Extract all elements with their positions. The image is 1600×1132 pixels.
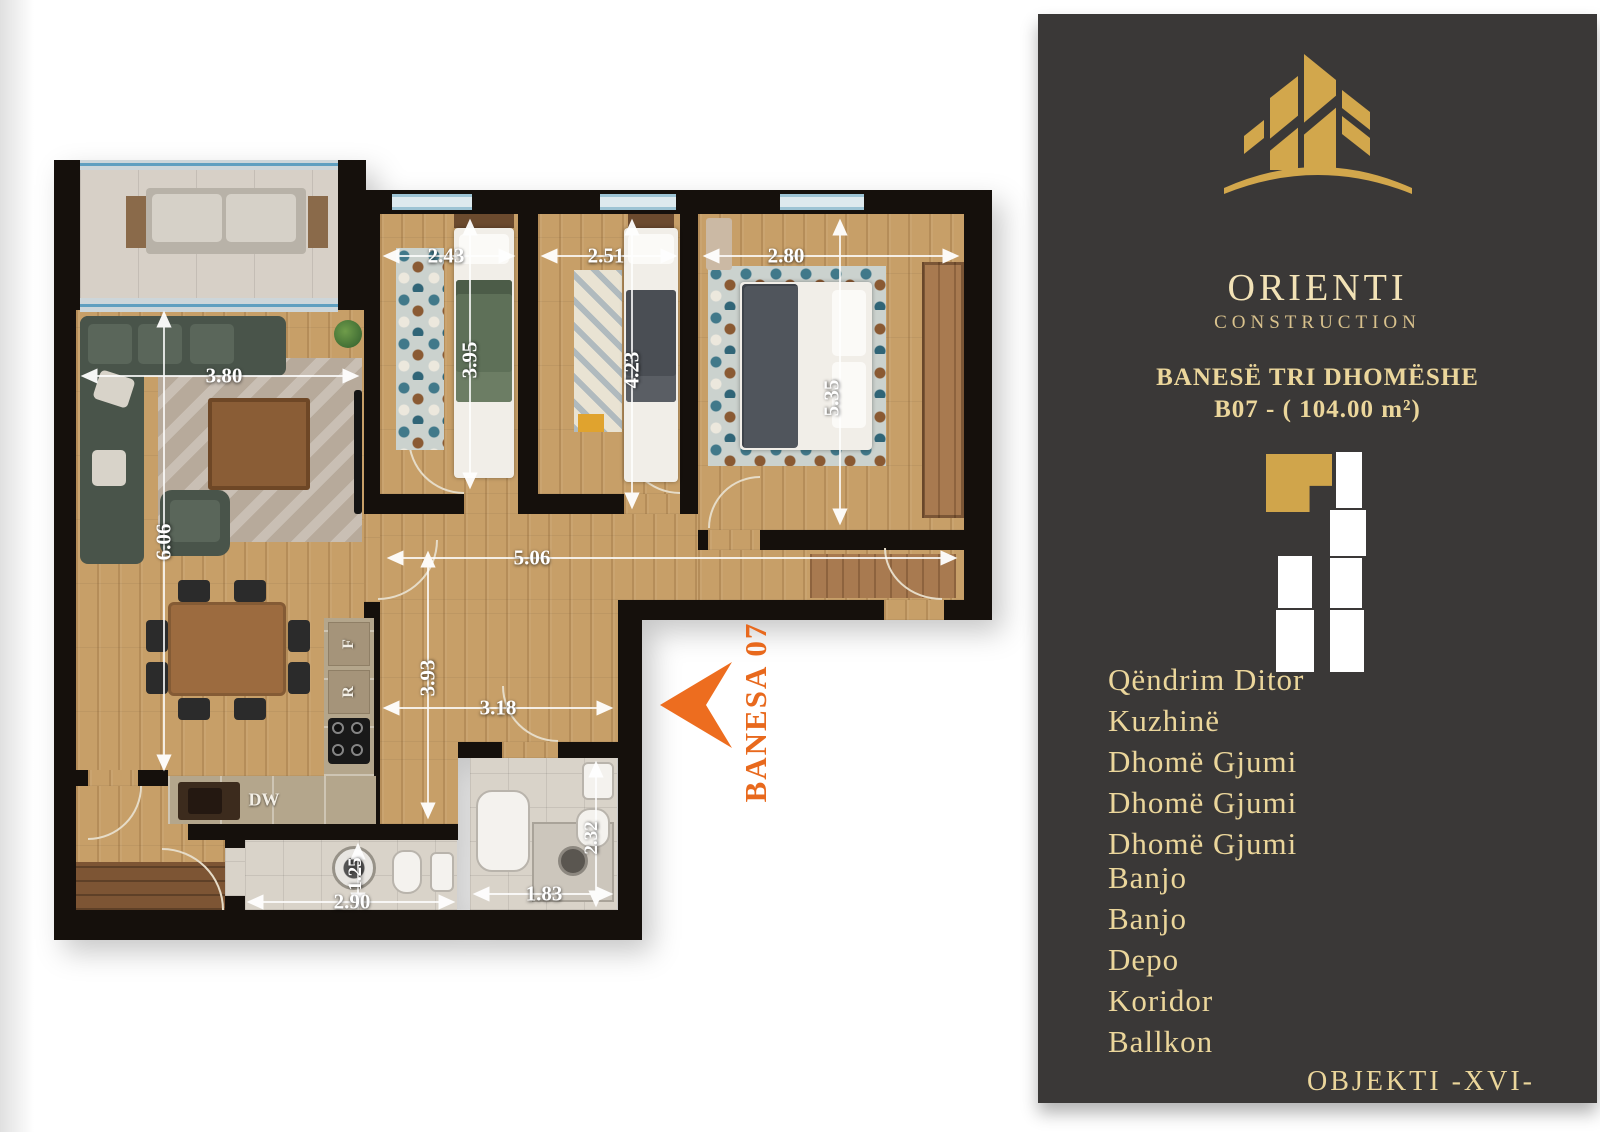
bedroom3-duvet-dark — [742, 284, 798, 448]
wall — [338, 160, 366, 310]
toilet — [392, 850, 422, 894]
bedroom2-pillow — [628, 234, 674, 264]
flyer-page: F R DW — [0, 0, 1600, 1132]
dining-chair — [146, 620, 168, 652]
room-list-item: Banjo — [1108, 903, 1304, 935]
bathtub — [476, 790, 530, 872]
bedroom3-pillow — [832, 290, 866, 356]
stove-burner — [332, 722, 344, 734]
wall — [518, 212, 538, 514]
door-gap-bedroom2 — [624, 494, 680, 514]
dining-chair — [146, 662, 168, 694]
coffee-table — [208, 398, 310, 490]
dining-chair — [288, 662, 310, 694]
sofa-cushion — [138, 324, 182, 364]
dim-bathroom2-width: 1.83 — [526, 882, 563, 907]
dim-bedroom2-width: 2.51 — [588, 244, 625, 269]
brand-panel: ORIENTI CONSTRUCTION BANESË TRI DHOMËSHE… — [1038, 14, 1597, 1103]
floor-plan: F R DW — [40, 150, 1000, 966]
bedroom1-headboard — [454, 214, 514, 228]
hallway-floor-lower — [380, 742, 458, 824]
dim-bedroom3-width: 2.80 — [768, 244, 805, 269]
dishwasher-label: DW — [249, 790, 280, 811]
wall — [964, 190, 992, 620]
bedroom1-window — [392, 194, 472, 210]
building-key-plan — [1252, 450, 1392, 682]
bedroom1-rug — [396, 248, 444, 450]
wall — [698, 530, 708, 550]
dining-table — [168, 602, 286, 696]
wall — [680, 212, 698, 514]
room-list-item: Dhomë Gjumi — [1108, 787, 1304, 819]
balcony-side-table — [126, 196, 146, 248]
balcony-side-table — [308, 196, 328, 248]
sofa-pillow — [92, 450, 126, 486]
dim-hallway-width: 3.18 — [480, 696, 517, 721]
wall — [54, 160, 80, 310]
door-gap-bedroom1 — [464, 494, 518, 514]
balcony-sofa-cushion — [152, 194, 222, 242]
dim-bathroom2-depth: 2.32 — [581, 821, 603, 854]
wall — [458, 742, 502, 758]
wall — [225, 896, 245, 910]
stove-burner — [351, 722, 363, 734]
bathroom1-sink — [430, 852, 454, 892]
dining-chair — [288, 620, 310, 652]
key-plan-unit — [1278, 556, 1312, 608]
dining-chair — [178, 580, 210, 602]
kitchen-sink-basin — [188, 788, 222, 814]
wall — [760, 530, 964, 550]
wall — [364, 214, 380, 514]
balcony-window-glass — [80, 163, 338, 166]
dim-living-depth: 6.06 — [152, 524, 177, 561]
room-list-item: Dhomë Gjumi — [1108, 828, 1304, 860]
room-list-item: Koridor — [1108, 985, 1304, 1017]
brand-name: ORIENTI — [1038, 266, 1597, 310]
stove-burner — [332, 744, 344, 756]
dim-hallway-depth: 3.93 — [416, 660, 441, 697]
door-gap-depo — [88, 770, 138, 786]
room-list-item: Qëndrim Ditor — [1108, 664, 1304, 696]
dining-chair — [234, 580, 266, 602]
key-plan-unit — [1330, 510, 1366, 556]
wall — [54, 910, 642, 940]
wall — [225, 824, 245, 848]
bedroom2-headboard — [628, 214, 674, 228]
plant — [334, 320, 362, 348]
wall — [76, 770, 88, 786]
apartment-code: B07 - ( 104.00 m²) — [1038, 396, 1597, 424]
key-plan-unit — [1330, 610, 1364, 672]
sofa-cushion — [88, 324, 132, 364]
dim-corridor-length: 5.06 — [514, 546, 551, 571]
brand-subtitle: CONSTRUCTION — [1038, 312, 1597, 334]
wall — [618, 600, 642, 930]
key-plan-unit-highlighted — [1266, 454, 1332, 512]
door-gap-bedroom3 — [708, 530, 760, 550]
object-label: OBJEKTI -XVI- — [1307, 1066, 1535, 1098]
armchair-cushion — [170, 500, 220, 542]
dim-living-width: 3.80 — [206, 364, 243, 389]
key-plan-unit — [1330, 558, 1362, 608]
stove-burner — [351, 744, 363, 756]
door-gap-bathroom2 — [502, 742, 558, 758]
dim-bathroom1-depth: 1.25 — [345, 857, 367, 890]
fridge-label: R — [340, 686, 358, 698]
wall — [538, 494, 624, 514]
unit-label: BANESA 07 — [738, 602, 782, 822]
dim-bathroom1-width: 2.90 — [334, 890, 371, 915]
bedroom2-rug — [574, 270, 622, 432]
apartment-type: BANESË TRI DHOMËSHE — [1038, 364, 1597, 392]
dim-bedroom1-width: 2.43 — [428, 244, 465, 269]
room-list-item: Depo — [1108, 944, 1304, 976]
unit-arrow-icon — [652, 658, 736, 750]
bedroom3-window — [780, 194, 864, 210]
room-list-item: Ballkon — [1108, 1026, 1304, 1058]
wall — [364, 494, 464, 514]
bedroom3-bench — [706, 218, 732, 270]
balcony-sofa-cushion — [226, 194, 296, 242]
dim-bedroom2-depth: 4.23 — [620, 352, 645, 389]
door-gap-bathroom1 — [225, 848, 245, 896]
page-edge-shadow — [0, 0, 34, 1132]
orienti-logo-icon — [1208, 40, 1428, 240]
dining-chair — [178, 698, 210, 720]
room-list-item: Banjo — [1108, 862, 1304, 894]
room-list-item: Kuzhinë — [1108, 705, 1304, 737]
bedroom2-window — [600, 194, 676, 210]
tv-unit — [354, 390, 362, 514]
sofa-cushion — [190, 324, 234, 364]
wall — [944, 600, 964, 620]
freezer-label: F — [340, 639, 358, 649]
dining-chair — [234, 698, 266, 720]
dim-bedroom3-depth: 5.35 — [820, 380, 845, 417]
room-list-item: Dhomë Gjumi — [1108, 746, 1304, 778]
bedroom2-rug-accent — [578, 414, 604, 432]
wall — [558, 742, 642, 758]
bedroom1-pillow — [459, 234, 509, 264]
wall — [54, 306, 76, 932]
bathroom2-sink — [582, 762, 614, 800]
door-gap-entry — [884, 600, 944, 620]
dim-bedroom1-depth: 3.95 — [458, 342, 483, 379]
bedroom3-wardrobe — [922, 262, 964, 518]
key-plan-unit — [1336, 452, 1362, 508]
wall — [138, 770, 168, 786]
balcony-sliding-door-glass — [80, 304, 338, 307]
room-list: Qëndrim Ditor Kuzhinë Dhomë Gjumi Dhomë … — [1108, 664, 1304, 1058]
